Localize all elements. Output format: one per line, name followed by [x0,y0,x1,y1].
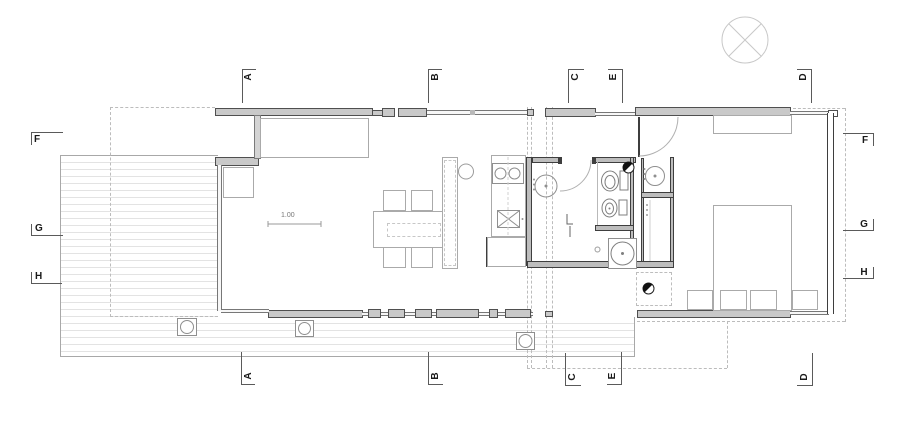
fixtures-layer [0,0,900,425]
section-marker-d-top: D [798,71,810,83]
elevation-line-g [31,235,63,236]
section-line-d [812,353,813,385]
shower-stall [646,200,650,261]
section-marker-d-bottom: D [799,371,811,383]
elevation-line-f [843,133,874,134]
section-tick-c [568,69,584,70]
elevation-line-f [31,132,63,133]
section-line-b [428,69,429,103]
scale-bar [268,221,321,227]
drain-icon [623,162,634,173]
compass-icon [722,17,768,63]
drain-icon [643,283,654,294]
washbasin-icon [644,167,665,186]
section-line-e [622,69,623,103]
door-knob-icon [595,247,600,252]
scale-dimension-label: 1.00 [281,212,295,219]
section-tick-a [242,69,256,70]
section-marker-c-bottom: C [567,371,579,383]
section-line-d [811,69,812,103]
elevation-marker-f-right: F [859,135,871,147]
elevation-tick-g [873,219,874,231]
light-switch-icon [567,214,573,237]
laundry-basin-icon [533,175,557,197]
section-tick-b [428,69,442,70]
section-tick-a [241,384,255,385]
section-line-c [568,69,569,103]
section-marker-e-bottom: E [607,370,619,382]
elevation-marker-h-right: H [858,267,870,279]
stool-icon [459,164,474,179]
section-marker-b-bottom: B [430,370,442,382]
elevation-marker-h-left: H [35,271,47,283]
section-marker-c-top: C [570,71,582,83]
elevation-marker-f-left: F [34,134,46,146]
section-marker-a-top: A [243,71,255,83]
section-marker-b-top: B [430,71,442,83]
washing-machine-drum-icon [611,242,634,265]
toilet-icon [602,171,629,191]
elevation-tick-h [31,272,32,284]
elevation-line-h [31,283,62,284]
section-line-b [428,352,429,384]
section-tick-e [607,384,622,385]
section-tick-d [797,385,813,386]
bidet-icon [602,199,627,217]
section-tick-d [797,69,812,70]
section-tick-c [565,385,581,386]
section-line-e [621,352,622,384]
planter-circle-icon [181,321,533,348]
floor-plan-canvas: 1.00 A B C E D A B C E D F G H F G H [0,0,900,425]
elevation-tick-f [873,133,874,146]
section-marker-a-bottom: A [243,370,255,382]
door-swing-icon [639,117,678,156]
section-marker-e-top: E [608,71,620,83]
section-tick-b [428,384,443,385]
elevation-marker-g-left: G [35,223,47,235]
section-tick-e [608,69,623,70]
elevation-marker-g-right: G [858,219,870,231]
elevation-tick-g [31,224,32,236]
section-line-c [565,353,566,385]
elevation-tick-h [873,267,874,279]
kitchen-sink-icon [498,211,524,227]
section-line-a [241,352,242,384]
door-swing-icon [560,160,591,191]
elevation-tick-f [31,132,32,145]
